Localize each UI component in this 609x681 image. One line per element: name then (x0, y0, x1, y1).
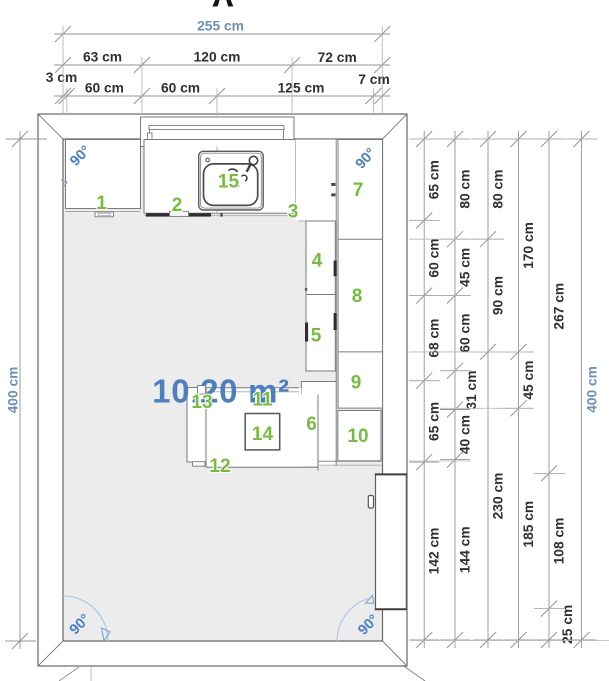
svg-text:400 cm: 400 cm (585, 366, 600, 413)
svg-text:108 cm: 108 cm (552, 518, 567, 565)
svg-text:1: 1 (96, 193, 107, 214)
svg-text:170 cm: 170 cm (521, 222, 536, 269)
svg-text:15: 15 (218, 172, 240, 193)
svg-text:185 cm: 185 cm (521, 501, 536, 548)
svg-text:12: 12 (209, 456, 230, 477)
svg-text:65 cm: 65 cm (427, 402, 442, 441)
svg-text:31 cm: 31 cm (464, 371, 479, 410)
svg-text:5: 5 (311, 326, 322, 347)
svg-text:7 cm: 7 cm (358, 72, 389, 87)
svg-text:3 cm: 3 cm (46, 70, 77, 85)
svg-text:13: 13 (191, 392, 212, 413)
svg-text:267 cm: 267 cm (552, 283, 567, 330)
svg-text:80 cm: 80 cm (491, 170, 506, 209)
svg-text:10: 10 (347, 426, 368, 447)
svg-text:142 cm: 142 cm (427, 528, 442, 575)
svg-text:2: 2 (172, 195, 183, 216)
svg-text:45 cm: 45 cm (458, 248, 473, 287)
svg-text:60 cm: 60 cm (85, 81, 124, 96)
svg-text:400 cm: 400 cm (6, 367, 21, 414)
svg-text:65 cm: 65 cm (427, 160, 442, 199)
svg-text:63 cm: 63 cm (83, 50, 122, 65)
svg-text:4: 4 (312, 251, 323, 272)
svg-text:90 cm: 90 cm (491, 276, 506, 315)
svg-text:9: 9 (351, 373, 362, 394)
svg-text:255 cm: 255 cm (197, 19, 244, 34)
svg-text:3: 3 (288, 202, 299, 223)
svg-text:80 cm: 80 cm (458, 170, 473, 209)
svg-text:7: 7 (353, 180, 364, 201)
svg-text:40 cm: 40 cm (458, 415, 473, 454)
svg-text:230 cm: 230 cm (491, 473, 506, 520)
svg-text:25 cm: 25 cm (560, 605, 575, 644)
svg-text:72 cm: 72 cm (318, 50, 357, 65)
svg-text:11: 11 (252, 390, 273, 411)
svg-text:8: 8 (352, 286, 363, 307)
svg-text:120 cm: 120 cm (194, 50, 241, 65)
svg-text:125 cm: 125 cm (278, 81, 325, 96)
svg-text:60 cm: 60 cm (458, 314, 473, 353)
svg-text:45 cm: 45 cm (521, 361, 536, 400)
svg-text:14: 14 (252, 424, 274, 445)
svg-text:60 cm: 60 cm (161, 81, 200, 96)
svg-text:60 cm: 60 cm (427, 238, 442, 277)
svg-text:6: 6 (306, 414, 317, 435)
svg-text:144 cm: 144 cm (458, 526, 473, 573)
